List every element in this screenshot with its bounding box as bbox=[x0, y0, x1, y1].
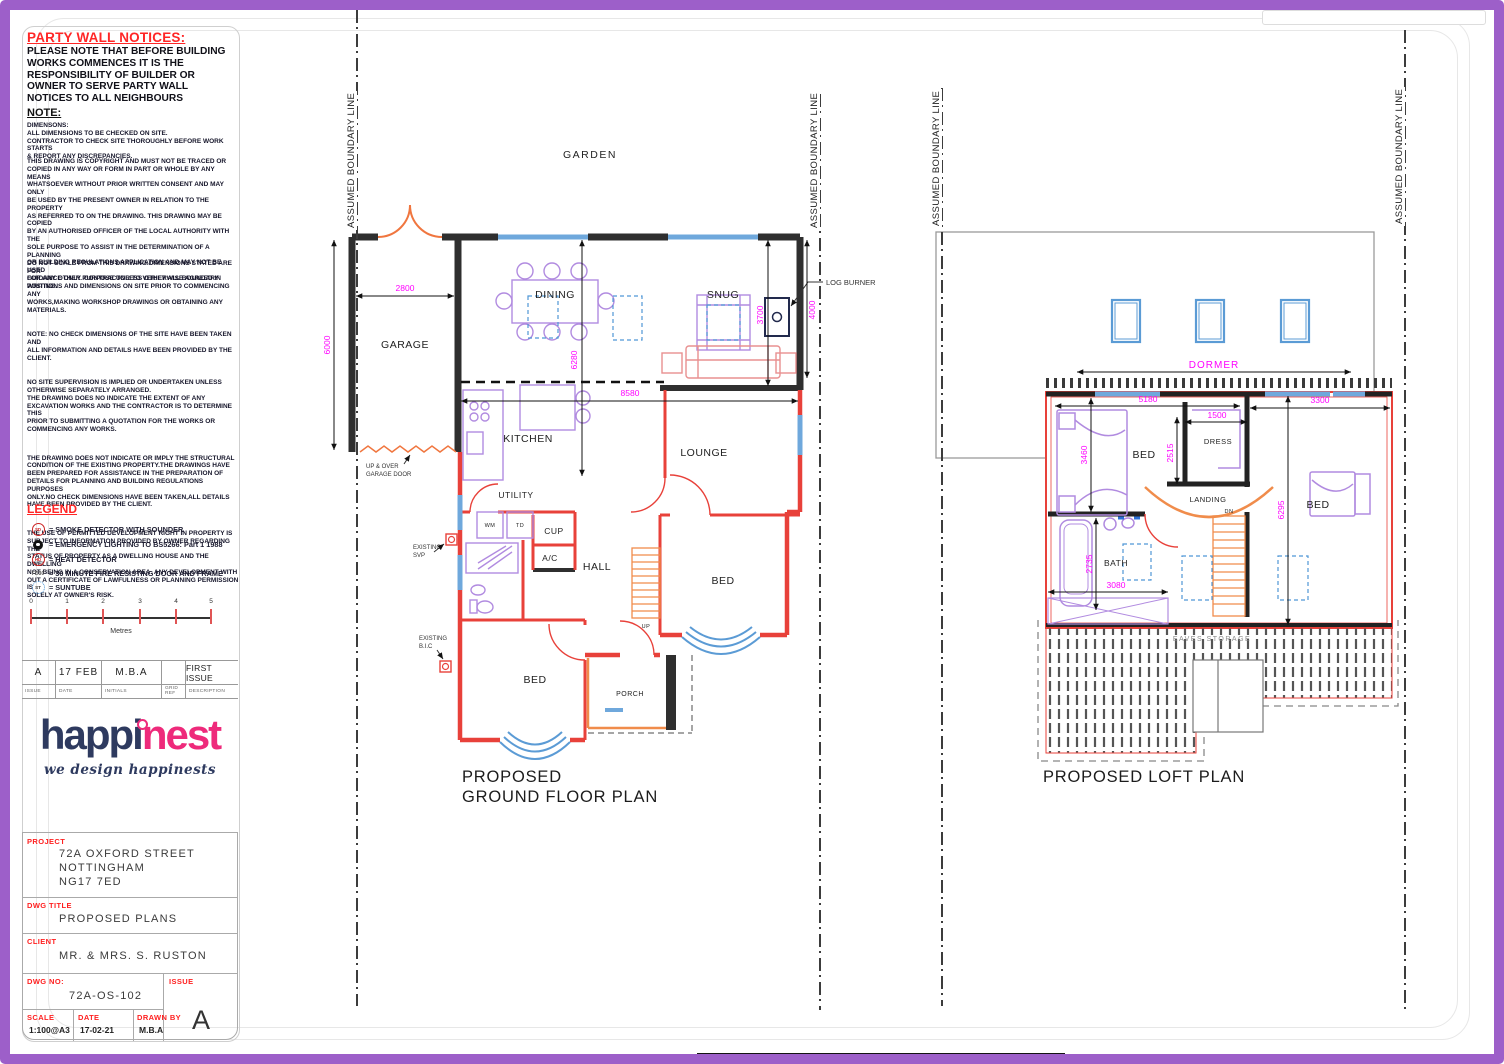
bed-front-label: BED bbox=[523, 674, 546, 686]
issue-header: INITIALS bbox=[102, 684, 162, 698]
note-heading: NOTE: bbox=[27, 107, 239, 119]
legend-item-emergency-lighting: = EMERGENCY LIGHTING TO BS5266: Part 1 1… bbox=[27, 538, 223, 551]
scale-column-divider bbox=[73, 1009, 74, 1041]
project-value: 72A OXFORD STREET NOTTINGHAM NG17 7ED bbox=[59, 847, 195, 889]
boundary-label-4: ASSUMED BOUNDARY LINE bbox=[1394, 87, 1405, 226]
scale-label: SCALE bbox=[27, 1013, 54, 1022]
date-label: DATE bbox=[78, 1013, 99, 1022]
logo-part-nest: nest bbox=[142, 711, 220, 758]
happinest-logo: happinest we design happinests bbox=[24, 712, 236, 778]
utility-label: UTILITY bbox=[498, 490, 533, 500]
snug-label: SNUG bbox=[707, 289, 739, 301]
legend-item-label: = HEAT DETECTOR bbox=[49, 555, 117, 564]
drawn-by-value: M.B.A bbox=[139, 1025, 163, 1035]
garage-door bbox=[360, 205, 456, 452]
garage-door-label-2: GARAGE DOOR bbox=[366, 472, 412, 478]
issue-header: DESCRIPTION bbox=[186, 684, 238, 698]
legend-item-label: = SUNTUBE bbox=[49, 583, 91, 592]
title-block: PROJECT 72A OXFORD STREET NOTTINGHAM NG1… bbox=[22, 832, 238, 1040]
scale-bar-line bbox=[30, 617, 212, 619]
disclaimer-1: DO NOT SCALE FROM THIS DRAWING.DIMENSION… bbox=[27, 260, 239, 315]
legend-item-label: = SMOKE DETECTOR WITH SOUNDER bbox=[49, 525, 183, 534]
dim-5180: 5180 bbox=[1139, 394, 1158, 404]
bic-label-1: EXISTING bbox=[419, 636, 447, 642]
dormer-label: DORMER bbox=[1189, 360, 1239, 371]
party-wall-title: PARTY WALL NOTICES: bbox=[27, 30, 239, 45]
scale-number: 2 bbox=[101, 598, 105, 605]
date-value: 17-02-21 bbox=[80, 1025, 114, 1035]
logo-i-dot bbox=[137, 719, 148, 730]
boundary-label-2: ASSUMED BOUNDARY LINE bbox=[809, 91, 820, 230]
boundary-label-3: ASSUMED BOUNDARY LINE bbox=[931, 89, 942, 228]
svp-label-2: SVP bbox=[413, 553, 425, 559]
garage-door-label-1: UP & OVER bbox=[366, 464, 399, 470]
garage-label: GARAGE bbox=[381, 339, 429, 351]
section-divider bbox=[23, 897, 237, 898]
loft-outline bbox=[1046, 392, 1392, 628]
disclaimer-4: THE DRAWING DOES NOT INDICATE OR IMPLY T… bbox=[27, 455, 239, 510]
bic-label-2: B.I.C bbox=[419, 644, 433, 650]
emergency-light-icon bbox=[27, 540, 49, 550]
existing-svp: EXISTING SVP bbox=[413, 534, 457, 559]
logo-wordmark: happinest bbox=[40, 712, 220, 758]
bed-rear-label: BED bbox=[711, 575, 734, 587]
ground-floor-title-line2: GROUND FLOOR PLAN bbox=[462, 788, 658, 807]
scale-number: 1 bbox=[65, 598, 69, 605]
dwg-no-label: DWG NO: bbox=[27, 977, 64, 986]
ground-windows bbox=[460, 237, 800, 590]
issue-header: ISSUE bbox=[22, 684, 56, 698]
smoke-detector-icon: SD bbox=[27, 523, 49, 536]
dress-label: DRESS bbox=[1204, 437, 1232, 446]
emergency-dot-glyph bbox=[33, 540, 43, 550]
snug-sofa bbox=[662, 346, 796, 378]
legend-item-label: = EMERGENCY LIGHTING TO BS5266: Part 1 1… bbox=[49, 540, 223, 549]
loft-bed-right-label: BED bbox=[1306, 499, 1329, 511]
loft-bed-left-label: BED bbox=[1132, 449, 1155, 461]
dim-2515: 2515 bbox=[1165, 443, 1175, 462]
drawn-by-label: DRAWN BY bbox=[137, 1013, 181, 1022]
logo-tagline: we design happinests bbox=[24, 762, 236, 778]
drawing-sheet: PARTY WALL NOTICES: PLEASE NOTE THAT BEF… bbox=[0, 0, 1504, 1064]
scale-tick bbox=[102, 609, 104, 624]
scale-value: 1:100@A3 bbox=[29, 1025, 70, 1035]
legend-item-label: = 30 MINUTE FIRE RESISTING DOOR AND FRAM… bbox=[49, 569, 223, 578]
scale-tick bbox=[30, 609, 32, 624]
disclaimer-2: NOTE: NO CHECK DIMENSIONS OF THE SITE HA… bbox=[27, 331, 239, 362]
dim-6280: 6280 bbox=[569, 350, 579, 369]
eaves-storage: EAVES STORAGE bbox=[1038, 620, 1398, 761]
bottom-edge-bar bbox=[697, 1053, 1065, 1064]
dwg-no-value: 72A-OS-102 bbox=[69, 989, 142, 1003]
project-label: PROJECT bbox=[27, 837, 65, 846]
boundary-label-1: ASSUMED BOUNDARY LINE bbox=[346, 91, 357, 230]
dim-1500: 1500 bbox=[1208, 410, 1227, 420]
bath-label: BATH bbox=[1104, 558, 1128, 568]
dwg-title-label: DWG TITLE bbox=[27, 901, 72, 910]
cup-label: CUP bbox=[544, 526, 563, 536]
dim-6295: 6295 bbox=[1276, 500, 1286, 519]
st-glyph: ST bbox=[32, 581, 45, 594]
dim-3080: 3080 bbox=[1107, 580, 1126, 590]
dim-6000: 6000 bbox=[322, 335, 332, 354]
suntube-icon: ST bbox=[27, 581, 49, 594]
legend-item-suntube: ST = SUNTUBE bbox=[27, 581, 91, 594]
ac-label: A/C bbox=[542, 553, 558, 563]
hd-glyph: HD bbox=[32, 553, 45, 566]
scale-tick bbox=[66, 609, 68, 624]
landing-label: LANDING bbox=[1190, 495, 1227, 504]
lounge-label: LOUNGE bbox=[680, 447, 727, 459]
td-label: TD bbox=[516, 523, 524, 529]
dim-8580: 8580 bbox=[621, 388, 640, 398]
scale-number: 4 bbox=[174, 598, 178, 605]
garage-door-note: UP & OVER GARAGE DOOR bbox=[366, 455, 412, 478]
legend-title: LEGEND bbox=[27, 502, 239, 516]
issue-row-divider bbox=[22, 661, 238, 685]
hall-label: HALL bbox=[583, 561, 611, 573]
ground-floor-plan: UP bbox=[320, 120, 880, 820]
scale-tick bbox=[175, 609, 177, 624]
scale-tick bbox=[139, 609, 141, 624]
wm-label: WM bbox=[485, 523, 496, 529]
staircase-up: UP bbox=[632, 548, 660, 630]
paper-edge-strip bbox=[1262, 10, 1486, 25]
dim-2735: 2735 bbox=[1084, 554, 1094, 573]
issue-header: DATE bbox=[56, 684, 102, 698]
section-divider bbox=[23, 1009, 163, 1010]
section-divider bbox=[23, 973, 237, 974]
dim-2800: 2800 bbox=[396, 283, 415, 293]
scale-tick bbox=[210, 609, 212, 624]
dwg-title-value: PROPOSED PLANS bbox=[59, 912, 177, 926]
legend-item-smoke-detector: SD = SMOKE DETECTOR WITH SOUNDER bbox=[27, 523, 183, 536]
scale-number: 5 bbox=[209, 598, 213, 605]
client-value: MR. & MRS. S. RUSTON bbox=[59, 949, 207, 963]
legend-item-heat-detector: HD = HEAT DETECTOR bbox=[27, 553, 117, 566]
heat-detector-icon: HD bbox=[27, 553, 49, 566]
porch-label: PORCH bbox=[616, 691, 644, 698]
scale-bar: 0 1 2 3 4 5 Metres bbox=[30, 598, 212, 642]
ground-floor-title-line1: PROPOSED bbox=[462, 768, 562, 787]
scale-number: 0 bbox=[29, 598, 33, 605]
ground-dimensions: 2800 6000 8580 6280 3700 4000 bbox=[322, 240, 817, 476]
stairs-up-label: UP bbox=[642, 624, 651, 630]
log-burner-label: LOG BURNER bbox=[826, 278, 876, 287]
loft-plan-title: PROPOSED LOFT PLAN bbox=[1043, 768, 1245, 787]
dining-label: DINING bbox=[535, 289, 575, 301]
dim-3460: 3460 bbox=[1079, 445, 1089, 464]
scale-number: 3 bbox=[138, 598, 142, 605]
section-divider bbox=[23, 933, 237, 934]
fd30-glyph: FD30 bbox=[32, 571, 44, 577]
date-column-divider bbox=[133, 1009, 134, 1041]
stairs-dn-label: DN bbox=[1225, 509, 1234, 515]
legend-item-fire-door: FD30 = 30 MINUTE FIRE RESISTING DOOR AND… bbox=[27, 567, 223, 580]
disclaimer-3: NO SITE SUPERVISION IS IMPLIED OR UNDERT… bbox=[27, 379, 239, 434]
boundary-line-2 bbox=[819, 94, 821, 1010]
fd30-icon: FD30 bbox=[27, 571, 49, 577]
issue-table: A 17 FEB M.B.A FIRST ISSUE ISSUE DATE IN… bbox=[22, 660, 238, 699]
eaves-storage-label: EAVES STORAGE bbox=[1173, 636, 1251, 643]
issue-header: GRID REF bbox=[162, 684, 186, 698]
existing-bic: EXISTING B.I.C bbox=[419, 636, 451, 672]
dim-4000: 4000 bbox=[807, 300, 817, 319]
sd-glyph: SD bbox=[32, 523, 45, 536]
client-label: CLIENT bbox=[27, 937, 56, 946]
issue-label: ISSUE bbox=[169, 977, 194, 986]
scale-unit: Metres bbox=[30, 628, 212, 635]
logo-part-happi: happi bbox=[40, 711, 142, 758]
note-lines: DIMENSONS: ALL DIMENSIONS TO BE CHECKED … bbox=[27, 122, 239, 161]
dim-3700: 3700 bbox=[755, 305, 765, 324]
garden-label: GARDEN bbox=[563, 149, 617, 161]
dim-3300: 3300 bbox=[1311, 395, 1330, 405]
party-wall-body: PLEASE NOTE THAT BEFORE BUILDING WORKS C… bbox=[27, 46, 239, 105]
kitchen-label: KITCHEN bbox=[503, 433, 553, 445]
